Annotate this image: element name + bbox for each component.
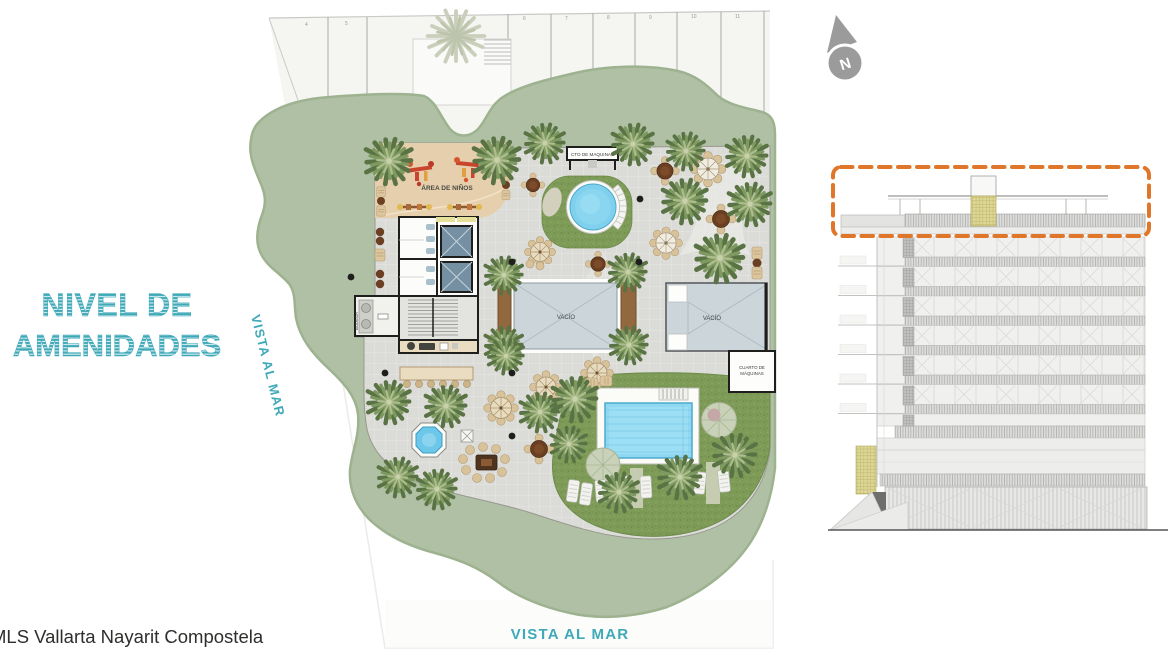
svg-text:CTO DE MAQUINAS: CTO DE MAQUINAS — [571, 152, 614, 157]
svg-text:MLS Vallarta Nayarit Compostel: MLS Vallarta Nayarit Compostela — [0, 626, 264, 647]
svg-text:AMENIDADES: AMENIDADES — [13, 328, 221, 363]
svg-text:CUARTO DE: CUARTO DE — [739, 365, 765, 370]
svg-text:4: 4 — [305, 22, 308, 28]
svg-text:6: 6 — [523, 16, 526, 22]
svg-text:7: 7 — [565, 16, 568, 22]
svg-text:9: 9 — [649, 15, 652, 21]
svg-text:11: 11 — [735, 14, 740, 20]
svg-text:5: 5 — [345, 21, 348, 27]
svg-text:ÁREA DE NIÑOS: ÁREA DE NIÑOS — [421, 183, 473, 192]
svg-text:MÁQUINAS: MÁQUINAS — [740, 371, 763, 376]
svg-text:10: 10 — [691, 14, 697, 20]
svg-text:VISTA AL MAR: VISTA AL MAR — [248, 313, 288, 418]
svg-text:NIVEL DE: NIVEL DE — [42, 287, 193, 323]
svg-text:8: 8 — [607, 15, 610, 21]
svg-text:BODEGA: BODEGA — [354, 312, 359, 330]
svg-text:VACÍO: VACÍO — [557, 314, 576, 321]
svg-text:VACÍO: VACÍO — [703, 315, 722, 322]
svg-text:VISTA AL MAR: VISTA AL MAR — [511, 626, 630, 643]
